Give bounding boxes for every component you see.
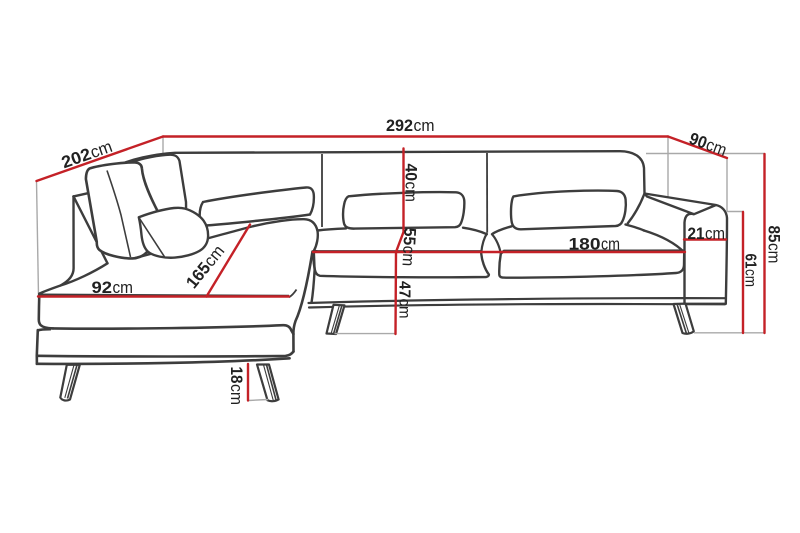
svg-text:cm: cm — [88, 137, 115, 162]
svg-text:cm: cm — [227, 384, 246, 405]
svg-text:40: 40 — [402, 164, 421, 182]
svg-text:cm: cm — [601, 234, 620, 253]
svg-text:cm: cm — [396, 299, 413, 319]
svg-text:21: 21 — [688, 224, 705, 243]
svg-text:292: 292 — [386, 117, 413, 135]
svg-text:cm: cm — [113, 278, 134, 297]
svg-text:cm: cm — [402, 182, 421, 203]
svg-text:47: 47 — [396, 281, 413, 298]
svg-text:180: 180 — [569, 234, 601, 253]
svg-text:cm: cm — [705, 224, 725, 243]
svg-text:cm: cm — [398, 245, 418, 266]
svg-text:18: 18 — [227, 367, 246, 384]
svg-text:cm: cm — [742, 269, 759, 287]
svg-text:55: 55 — [400, 227, 420, 245]
svg-text:cm: cm — [765, 243, 784, 264]
svg-text:85: 85 — [765, 226, 784, 243]
svg-text:92: 92 — [92, 278, 113, 297]
svg-text:cm: cm — [414, 117, 435, 135]
svg-text:61: 61 — [742, 254, 759, 269]
